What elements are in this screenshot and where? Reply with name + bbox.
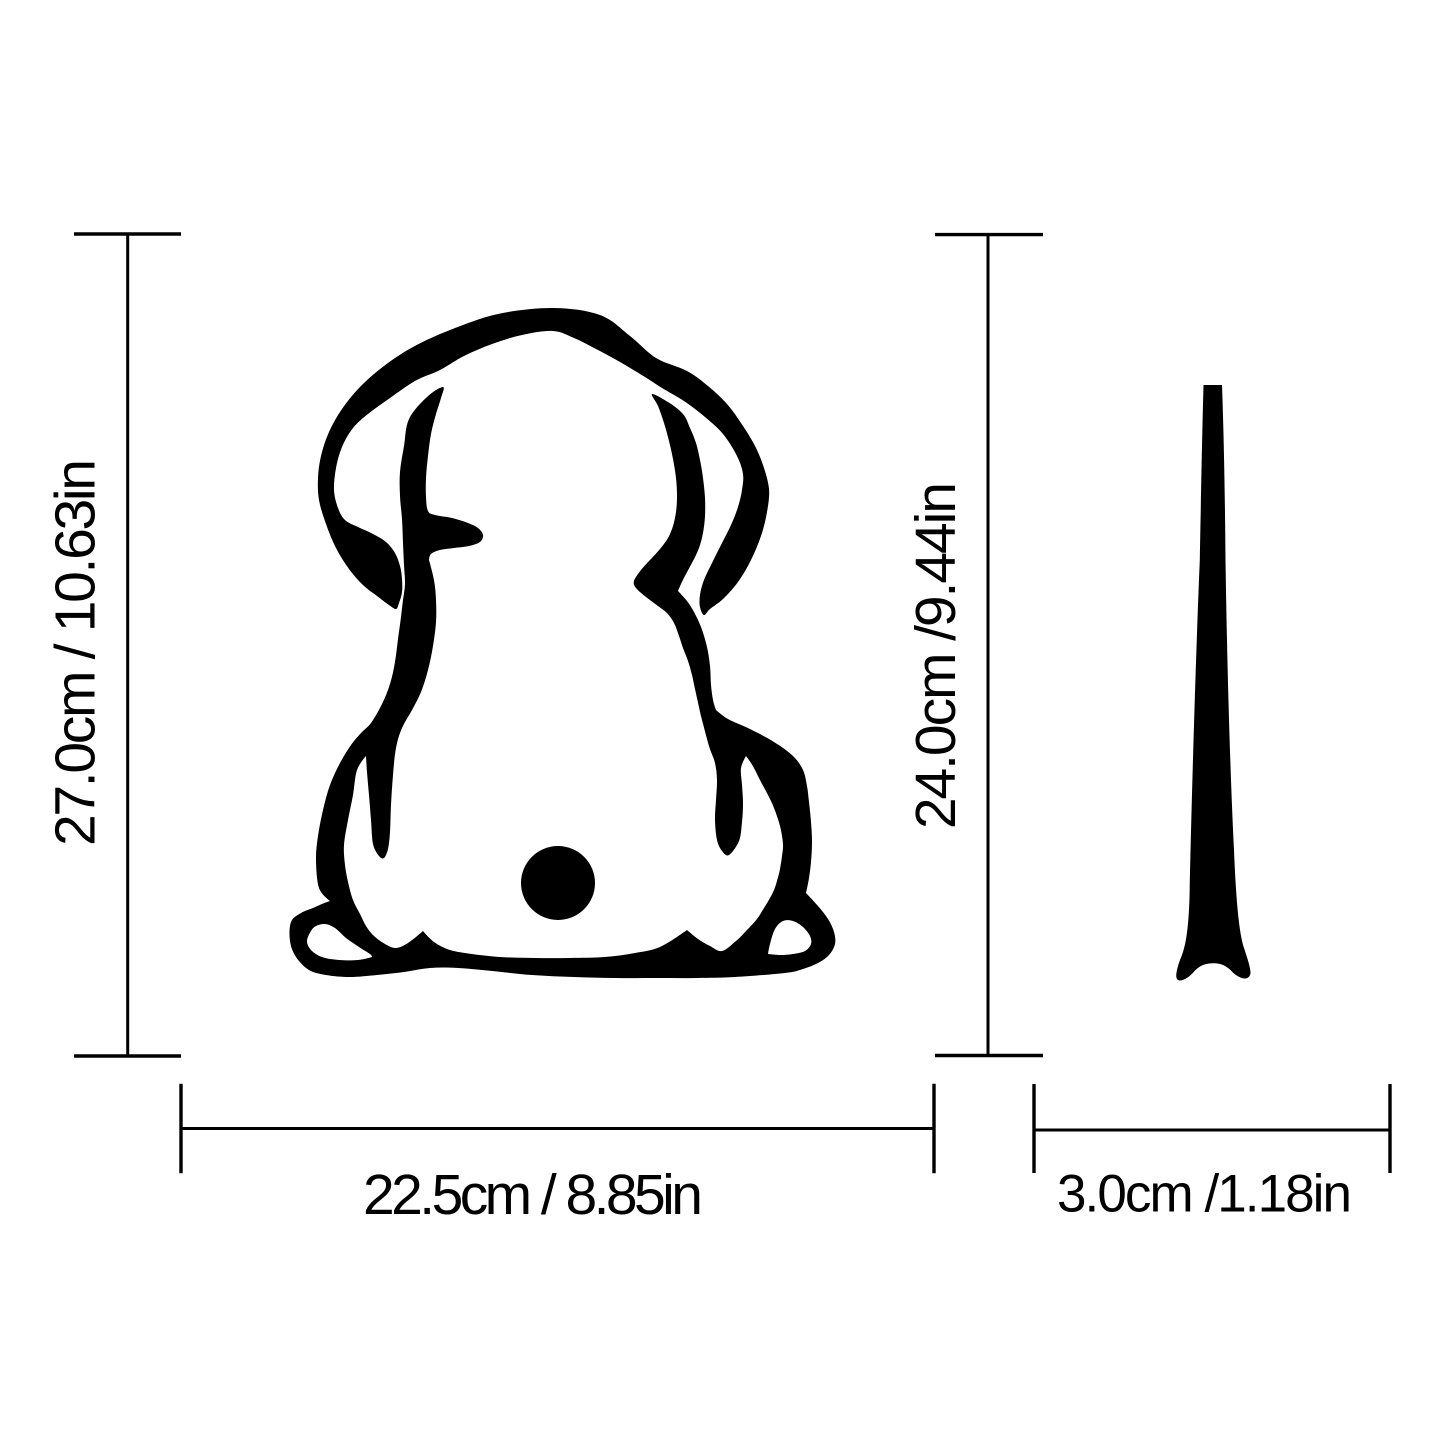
svg-text:22.5cm / 8.85in: 22.5cm / 8.85in <box>363 1163 703 1227</box>
svg-text:3.0cm /1.18in: 3.0cm /1.18in <box>1057 1165 1352 1224</box>
svg-text:24.0cm /9.44in: 24.0cm /9.44in <box>904 482 968 829</box>
svg-text:27.0cm / 10.63in: 27.0cm / 10.63in <box>44 459 108 846</box>
